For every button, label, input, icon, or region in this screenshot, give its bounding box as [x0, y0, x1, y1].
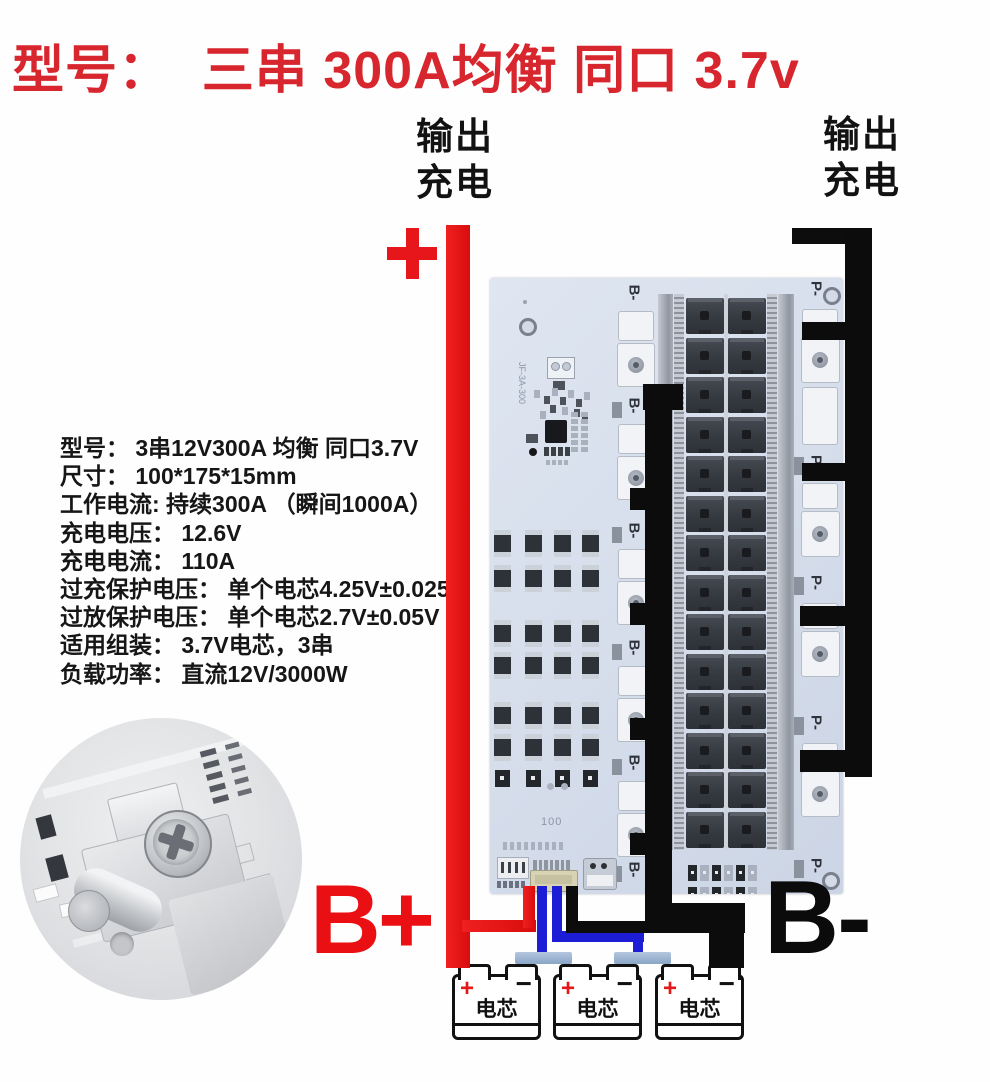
output-charge-label-left: 输出 充电	[396, 114, 514, 206]
mosfet-notch	[741, 725, 753, 729]
cap	[494, 642, 511, 647]
terminal-hole-center	[817, 531, 823, 537]
mosfet-lead	[688, 772, 722, 776]
b-plus-label: B+	[310, 870, 432, 968]
spec-line: 负载功率： 直流12V/3000W	[60, 660, 465, 688]
mosfet-lead	[688, 338, 722, 342]
ic-footprint-pad	[581, 433, 588, 438]
mosfet-dot	[700, 667, 709, 676]
smd-part	[568, 390, 574, 398]
mosfet-lead	[688, 654, 722, 658]
mosfet-notch	[741, 330, 753, 334]
ic-footprint-pad	[581, 447, 588, 452]
aux-pads	[515, 881, 519, 888]
mosfet	[728, 654, 766, 690]
spec-list: 型号： 3串12V300A 均衡 同口3.7V尺寸： 100*175*15mm工…	[60, 434, 465, 688]
p-minus-wire-tap	[800, 750, 847, 772]
silkscreen-tick	[545, 842, 549, 850]
b-minus-wire-tap	[630, 833, 647, 855]
mosfet-dot	[742, 351, 751, 360]
aux-pads	[509, 881, 513, 888]
cap	[554, 620, 571, 625]
mosfet-dot	[700, 706, 709, 715]
smd-part	[560, 397, 566, 405]
terminal-hole-center	[633, 362, 639, 368]
smd-part	[576, 399, 582, 407]
mosfet-lead	[688, 614, 722, 618]
cap	[494, 620, 511, 625]
mosfet	[686, 417, 724, 453]
cap	[525, 530, 542, 535]
blue-balance-wire-1	[537, 886, 547, 960]
bms-product-diagram: 型号： 三串 300A均衡 同口 3.7v 输出 充电 输出 充电 型号： 3串…	[0, 0, 990, 1082]
cap	[525, 652, 542, 657]
mosfet-notch	[699, 409, 711, 413]
cap	[494, 702, 511, 707]
pad-notch	[612, 644, 622, 660]
ic-footprint-pad	[581, 412, 588, 417]
usb-dot	[601, 863, 607, 869]
small-part	[748, 887, 757, 894]
mosfet-lead	[730, 377, 764, 381]
balance-resistor	[554, 565, 571, 592]
smd-part	[544, 396, 550, 404]
ic-footprint-pad	[571, 447, 578, 452]
component-can-pin	[562, 362, 571, 371]
b-minus-wire-tap	[630, 488, 647, 510]
cap	[525, 620, 542, 625]
dot	[751, 893, 754, 894]
balance-resistor	[554, 652, 571, 679]
mosfet-lead	[730, 535, 764, 539]
cap	[494, 734, 511, 739]
pad-notch	[794, 717, 804, 735]
balance-resistor	[525, 652, 542, 679]
mosfet-notch	[699, 567, 711, 571]
battery-base-band	[556, 1023, 639, 1037]
balance-resistor	[494, 734, 511, 761]
mosfet-notch	[699, 804, 711, 808]
smd-part	[562, 407, 568, 415]
cap	[525, 587, 542, 592]
small-capacitor	[495, 770, 510, 787]
mosfet-notch	[699, 528, 711, 532]
small-part	[688, 865, 697, 881]
mosfet-dot	[700, 588, 709, 597]
mosfet-notch	[741, 607, 753, 611]
mosfet-notch	[699, 488, 711, 492]
smd-part	[526, 434, 538, 443]
mosfet	[686, 575, 724, 611]
ic-pad	[231, 765, 246, 773]
charge-label-line2: 充电	[396, 160, 514, 206]
silkscreen-box	[33, 883, 60, 903]
p-minus-wire-tap	[802, 322, 847, 340]
silkscreen-tick	[559, 842, 563, 850]
mosfet	[686, 614, 724, 650]
p-terminal-pad	[801, 511, 840, 557]
balance-resistor	[554, 530, 571, 557]
mosfet-notch	[741, 844, 753, 848]
cap	[525, 674, 542, 679]
spec-line: 工作电流: 持续300A （瞬间1000A）	[60, 490, 465, 518]
b-minus-wire-tap	[630, 603, 647, 625]
small-part	[688, 887, 697, 894]
ic-footprint-pad	[571, 419, 578, 424]
battery-base-band	[455, 1023, 538, 1037]
spec-line: 充电电流： 110A	[60, 547, 465, 575]
cap	[494, 587, 511, 592]
dot	[751, 871, 754, 874]
mosfet	[728, 456, 766, 492]
b-minus-wire	[645, 384, 672, 908]
cap	[582, 620, 599, 625]
silkscreen-tick	[517, 842, 521, 850]
mosfet	[728, 377, 766, 413]
balance-connector-slot	[535, 875, 572, 884]
cap	[494, 530, 511, 535]
battery-cell-label: 电芯	[658, 993, 741, 1023]
cap	[494, 652, 511, 657]
p-minus-silkscreen-label: P-	[809, 278, 824, 300]
balance-resistor	[525, 702, 542, 729]
dot	[500, 776, 504, 780]
mosfet-dot	[742, 706, 751, 715]
dot	[715, 871, 718, 874]
mosfet-lead	[688, 377, 722, 381]
terminal-hole	[812, 352, 828, 368]
dot	[531, 776, 535, 780]
terminal-hole	[628, 470, 644, 486]
smd-component	[35, 814, 56, 839]
usb-dot	[590, 863, 596, 869]
smd-pad-row	[551, 447, 556, 456]
smd-pad-row	[565, 447, 570, 456]
mosfet-notch	[699, 686, 711, 690]
p-terminal-pad	[801, 771, 840, 817]
mosfet	[686, 456, 724, 492]
b-minus-wire	[709, 928, 744, 968]
balance-resistor	[494, 652, 511, 679]
smd-pad-row	[544, 447, 549, 456]
battery-cell: +−电芯	[452, 974, 541, 1040]
small-part	[724, 865, 733, 881]
mosfet-dot	[700, 390, 709, 399]
cap	[582, 734, 599, 739]
smd-part	[540, 411, 546, 419]
cap	[554, 652, 571, 657]
dot	[739, 871, 742, 874]
cap	[525, 642, 542, 647]
mosfet	[686, 693, 724, 729]
aux-connector-slot	[522, 862, 525, 873]
cap	[554, 587, 571, 592]
b-minus-label: B-	[764, 866, 870, 970]
mosfet-dot	[742, 588, 751, 597]
dot	[691, 871, 694, 874]
silkscreen-model-text: JF-3A-300	[517, 345, 527, 421]
screw-terminal-inset-photo	[20, 718, 302, 1000]
cap	[554, 756, 571, 761]
mosfet-dot	[700, 311, 709, 320]
dot	[727, 893, 730, 894]
small-part	[700, 887, 709, 894]
mosfet-leads-strip	[767, 294, 777, 850]
aux-connector-slot	[515, 862, 518, 873]
dot	[715, 893, 718, 894]
balance-resistor	[554, 620, 571, 647]
nickel-busbar	[515, 952, 572, 964]
terminal-hole	[628, 357, 644, 373]
mosfet-dot	[742, 667, 751, 676]
battery-cell: +−电芯	[655, 974, 744, 1040]
mosfet-dot	[742, 311, 751, 320]
dot	[588, 776, 592, 780]
pad-notch	[794, 577, 804, 595]
small-part	[712, 887, 721, 894]
mosfet-notch	[741, 409, 753, 413]
mosfet-lead	[688, 535, 722, 539]
mosfet-notch	[741, 567, 753, 571]
mosfet-notch	[699, 370, 711, 374]
small-part	[712, 865, 721, 881]
ic-footprint-pad	[571, 426, 578, 431]
mosfet-lead	[730, 338, 764, 342]
mosfet-dot	[742, 785, 751, 794]
cap	[554, 734, 571, 739]
b-minus-wire-tap	[630, 718, 647, 740]
mosfet-dot	[700, 509, 709, 518]
mosfet-notch	[741, 804, 753, 808]
b-minus-silkscreen-label: B-	[627, 752, 642, 774]
cap	[582, 642, 599, 647]
output-label-line1: 输出	[803, 112, 921, 158]
cap	[554, 565, 571, 570]
cap	[554, 530, 571, 535]
charge-label-line2: 充电	[803, 158, 921, 204]
mosfet	[686, 298, 724, 334]
silkscreen-tick	[552, 842, 556, 850]
mosfet	[728, 535, 766, 571]
mosfet-lead	[688, 812, 722, 816]
silkscreen-number: 100	[541, 816, 562, 828]
terminal-barrel-end	[68, 890, 110, 932]
mosfet-lead	[730, 417, 764, 421]
spec-line: 过放保护电压： 单个电芯2.7V±0.05V	[60, 603, 465, 631]
small-part	[724, 887, 733, 894]
component-can-pin	[551, 362, 560, 371]
balance-resistor	[554, 734, 571, 761]
balance-resistor	[525, 734, 542, 761]
small-part	[748, 865, 757, 881]
balance-resistor	[582, 734, 599, 761]
mosfet-dot	[700, 627, 709, 636]
mosfet-lead	[730, 812, 764, 816]
mosfet-dot	[700, 430, 709, 439]
cap	[525, 552, 542, 557]
mosfet-dot	[742, 746, 751, 755]
silkscreen-mark	[552, 460, 556, 465]
cap	[554, 642, 571, 647]
small-part	[700, 865, 709, 881]
p-minus-silkscreen-label: P-	[809, 572, 824, 594]
terminal-hole	[812, 526, 828, 542]
balance-resistor	[582, 565, 599, 592]
cap	[582, 530, 599, 535]
silkscreen-tick	[524, 842, 528, 850]
terminal-hole-center	[633, 475, 639, 481]
mosfet-dot	[742, 509, 751, 518]
mosfet-lead	[688, 496, 722, 500]
p-terminal-tab	[802, 387, 838, 445]
mosfet-dot	[742, 469, 751, 478]
dot	[560, 776, 564, 780]
smd-pad-row	[558, 447, 563, 456]
nickel-busbar	[614, 952, 671, 964]
ic-pad	[203, 759, 220, 769]
solder-busbar	[778, 294, 794, 850]
red-output-wire	[446, 225, 470, 968]
cap	[525, 734, 542, 739]
mosfet	[686, 377, 724, 413]
mosfet	[728, 733, 766, 769]
cap	[582, 756, 599, 761]
mosfet-lead	[730, 614, 764, 618]
balance-resistor	[494, 620, 511, 647]
terminal-hole-center	[817, 651, 823, 657]
mosfet-dot	[700, 469, 709, 478]
ic-pad	[206, 771, 223, 781]
mosfet-lead	[688, 693, 722, 697]
output-label-line1: 输出	[396, 114, 514, 160]
minus-symbol	[792, 228, 846, 244]
cap	[525, 756, 542, 761]
cap	[582, 702, 599, 707]
p-minus-wire	[845, 228, 872, 777]
p-terminal-tab	[802, 483, 838, 509]
mosfet	[686, 496, 724, 532]
cap	[554, 674, 571, 679]
balance-resistor	[494, 565, 511, 592]
mosfet-notch	[699, 330, 711, 334]
balance-resistor	[582, 702, 599, 729]
ic-footprint-pad	[571, 440, 578, 445]
spec-line: 充电电压： 12.6V	[60, 519, 465, 547]
mosfet	[686, 772, 724, 808]
mosfet-notch	[741, 370, 753, 374]
small-capacitor	[583, 770, 598, 787]
battery-base-band	[658, 1023, 741, 1037]
mosfet-lead	[730, 298, 764, 302]
balance-resistor	[525, 620, 542, 647]
mosfet-leads-strip	[674, 294, 684, 850]
balance-resistor	[582, 530, 599, 557]
ic-footprint-pad	[571, 412, 578, 417]
cap	[525, 565, 542, 570]
spec-line: 过充保护电压： 单个电芯4.25V±0.025V	[60, 575, 465, 603]
cap	[554, 552, 571, 557]
mosfet	[686, 535, 724, 571]
mosfet	[728, 614, 766, 650]
mosfet-notch	[699, 646, 711, 650]
plus-symbol-bar	[406, 228, 419, 279]
mosfet-dot	[742, 390, 751, 399]
dot	[727, 871, 730, 874]
smd-component	[45, 854, 69, 882]
aux-connector-slot	[508, 862, 511, 873]
mosfet-dot	[700, 825, 709, 834]
small-part	[736, 887, 745, 894]
smd-part	[534, 390, 540, 398]
cap	[494, 724, 511, 729]
cap	[582, 565, 599, 570]
mosfet-notch	[699, 725, 711, 729]
aux-connector-slot	[501, 862, 504, 873]
mosfet-dot	[742, 825, 751, 834]
mosfet	[728, 575, 766, 611]
p-minus-wire-tap	[802, 463, 847, 481]
spec-line: 适用组装： 3.7V电芯，3串	[60, 631, 465, 659]
ic-footprint-pad	[581, 419, 588, 424]
smd-part	[552, 388, 558, 396]
mosfet-notch	[741, 765, 753, 769]
mosfet-lead	[730, 575, 764, 579]
mosfet-lead	[730, 772, 764, 776]
dot	[703, 893, 706, 894]
mosfet-dot	[700, 785, 709, 794]
screw-hole	[519, 318, 537, 336]
ic-pad	[237, 788, 252, 796]
silkscreen-tick	[503, 842, 507, 850]
smd-part	[550, 405, 556, 413]
mosfet-lead	[688, 417, 722, 421]
b-minus-silkscreen-label: B-	[627, 637, 642, 659]
cap	[494, 565, 511, 570]
mosfet	[728, 338, 766, 374]
mosfet	[728, 812, 766, 848]
cap	[554, 702, 571, 707]
silkscreen-tick	[531, 842, 535, 850]
mosfet	[728, 693, 766, 729]
battery-cell-label: 电芯	[455, 993, 538, 1023]
mosfet-lead	[730, 456, 764, 460]
silkscreen-mark	[558, 460, 562, 465]
ic-footprint-pad	[581, 426, 588, 431]
cap	[582, 724, 599, 729]
terminal-hole	[812, 646, 828, 662]
pad-notch	[612, 759, 622, 775]
mosfet	[728, 417, 766, 453]
p-terminal-pad	[801, 337, 840, 383]
mounting-hole	[110, 932, 134, 956]
balance-resistor	[525, 530, 542, 557]
cap	[582, 652, 599, 657]
mosfet-notch	[741, 449, 753, 453]
mosfet	[686, 733, 724, 769]
via-dot	[561, 783, 568, 790]
ic-pad	[212, 794, 229, 804]
cap	[494, 552, 511, 557]
mosfet-notch	[699, 449, 711, 453]
ic-pad	[209, 783, 226, 793]
terminal-hole-center	[817, 791, 823, 797]
mosfet-lead	[730, 733, 764, 737]
mosfet-dot	[742, 627, 751, 636]
cap	[582, 587, 599, 592]
screw-hole	[823, 287, 841, 305]
balance-resistor	[494, 702, 511, 729]
silkscreen-tick	[510, 842, 514, 850]
